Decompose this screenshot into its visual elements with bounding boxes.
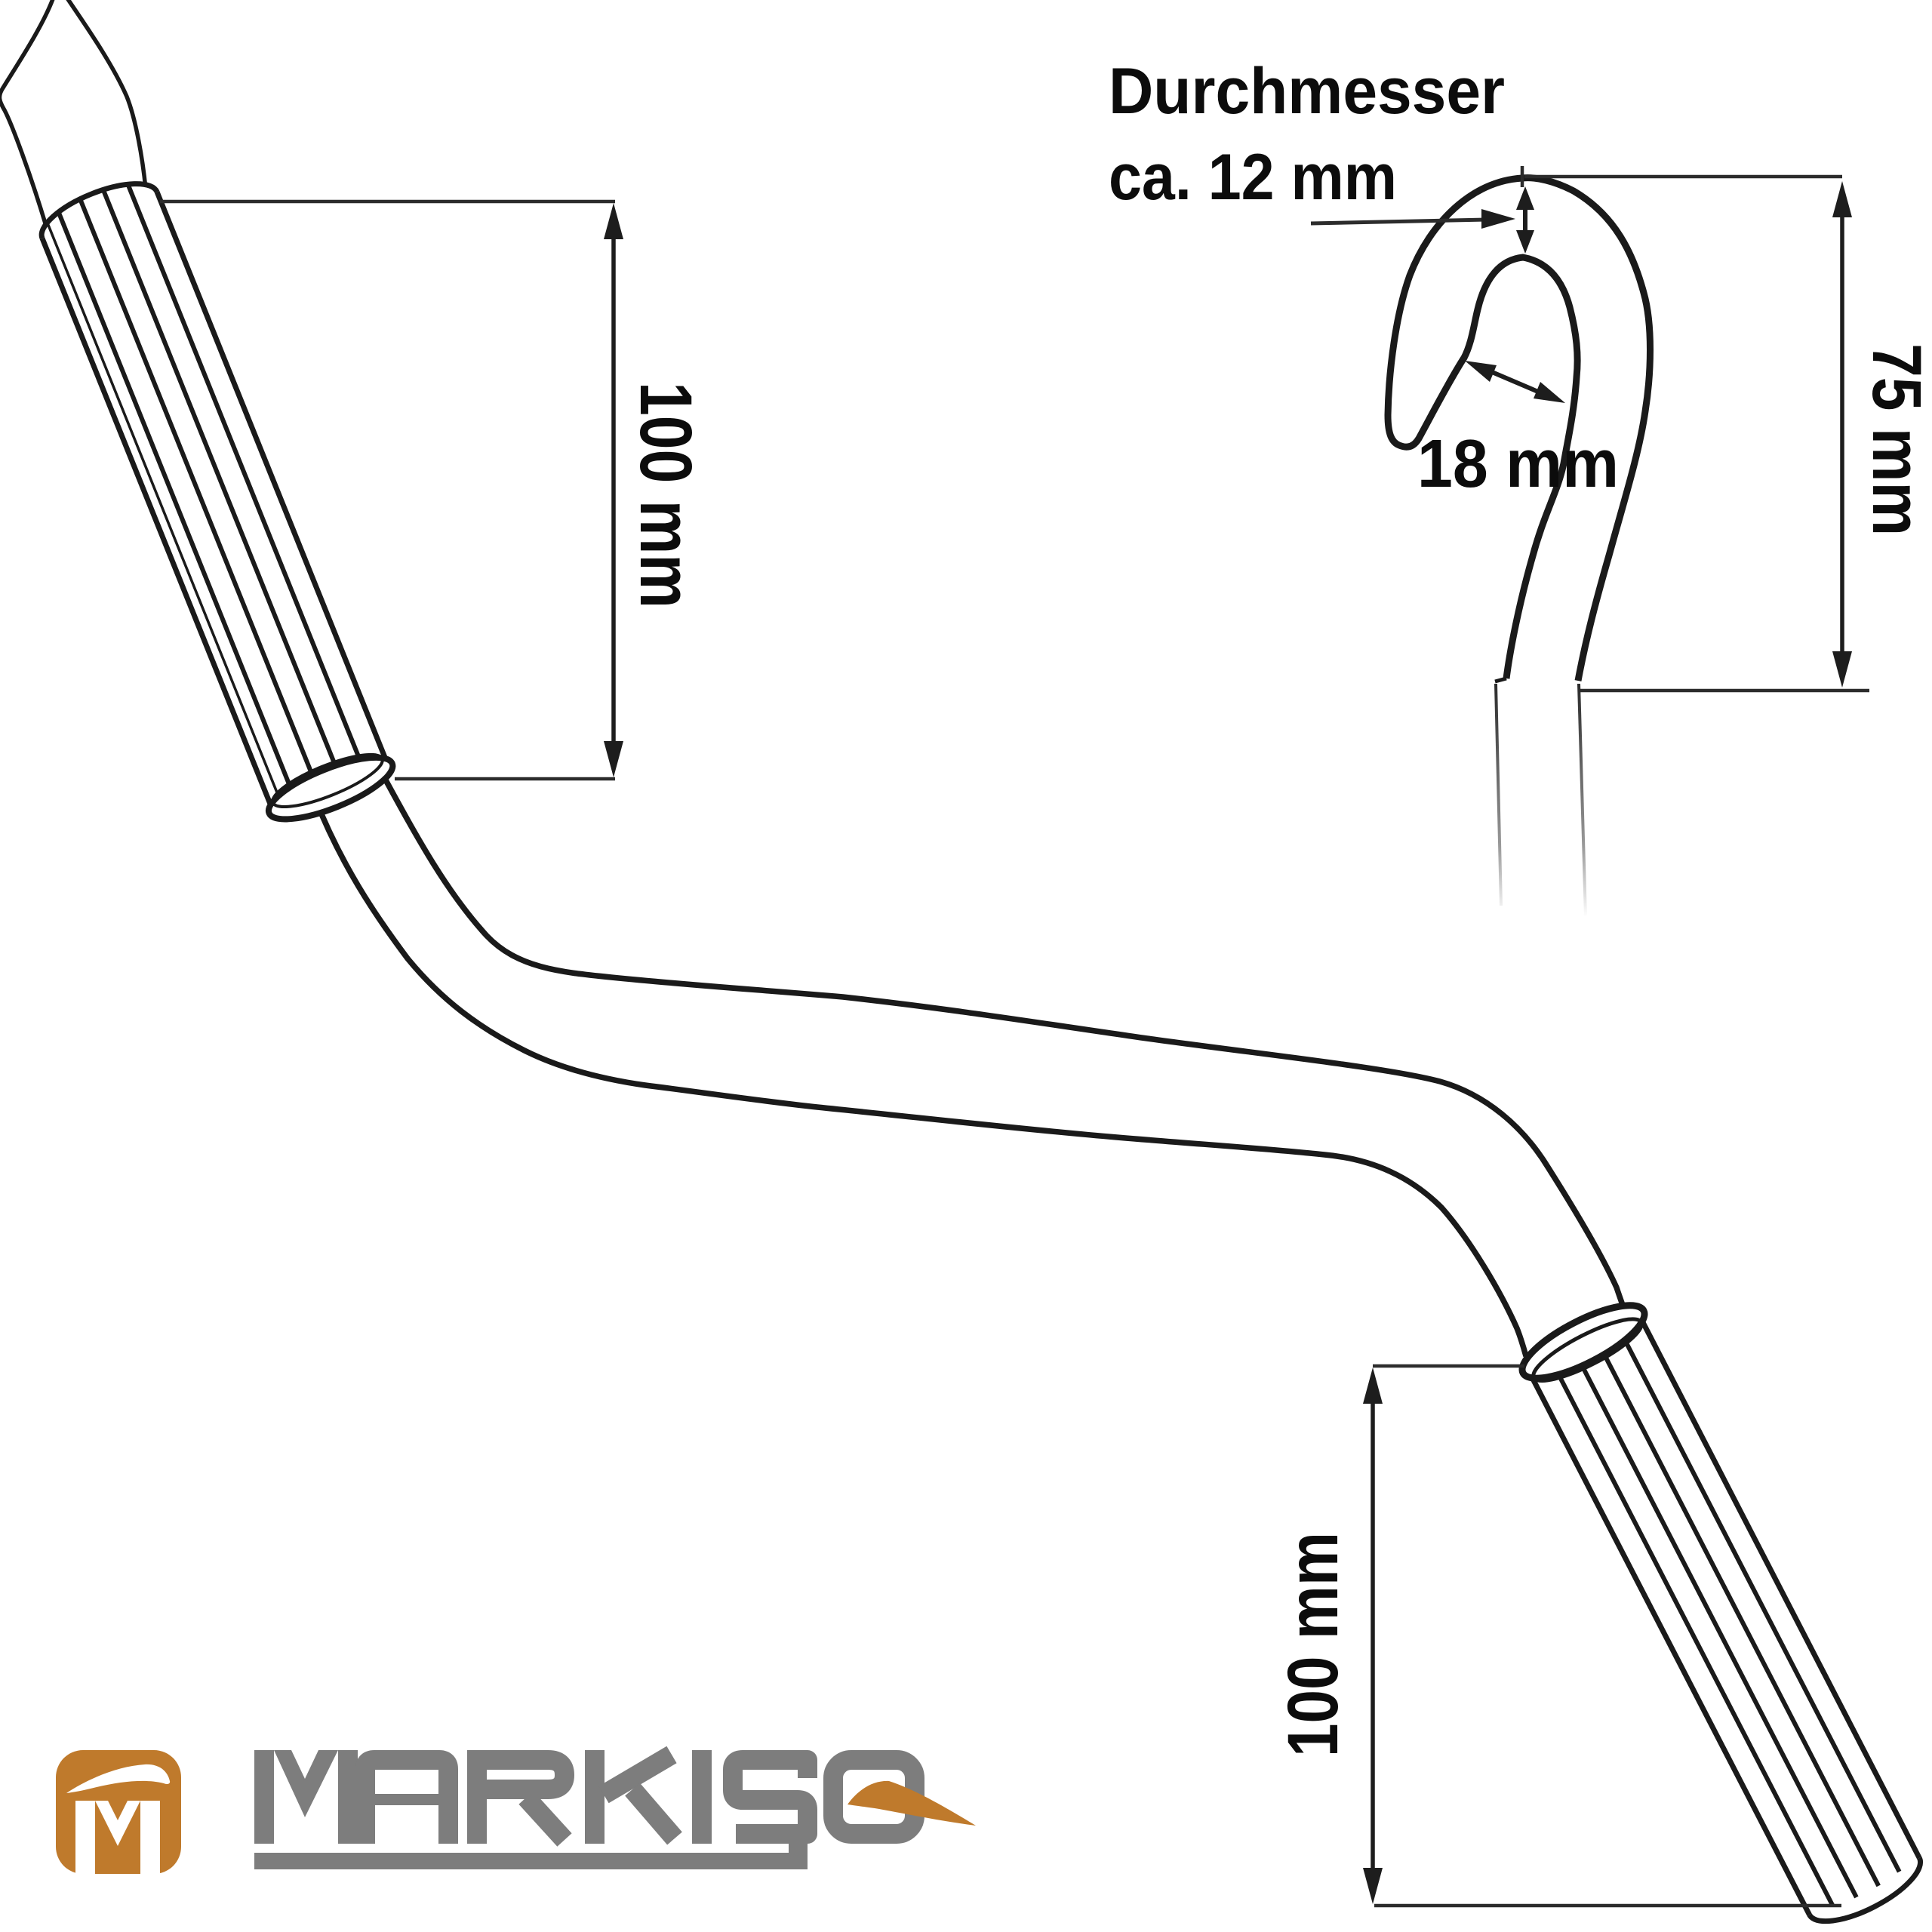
svg-text:18 mm: 18 mm [1417,426,1619,502]
svg-text:100 mm: 100 mm [1273,1532,1353,1757]
svg-text:100 mm: 100 mm [625,382,707,608]
svg-text:75 mm: 75 mm [1858,343,1932,536]
svg-text:ca. 12 mm: ca. 12 mm [1109,141,1397,214]
svg-text:Durchmesser: Durchmesser [1109,55,1505,128]
